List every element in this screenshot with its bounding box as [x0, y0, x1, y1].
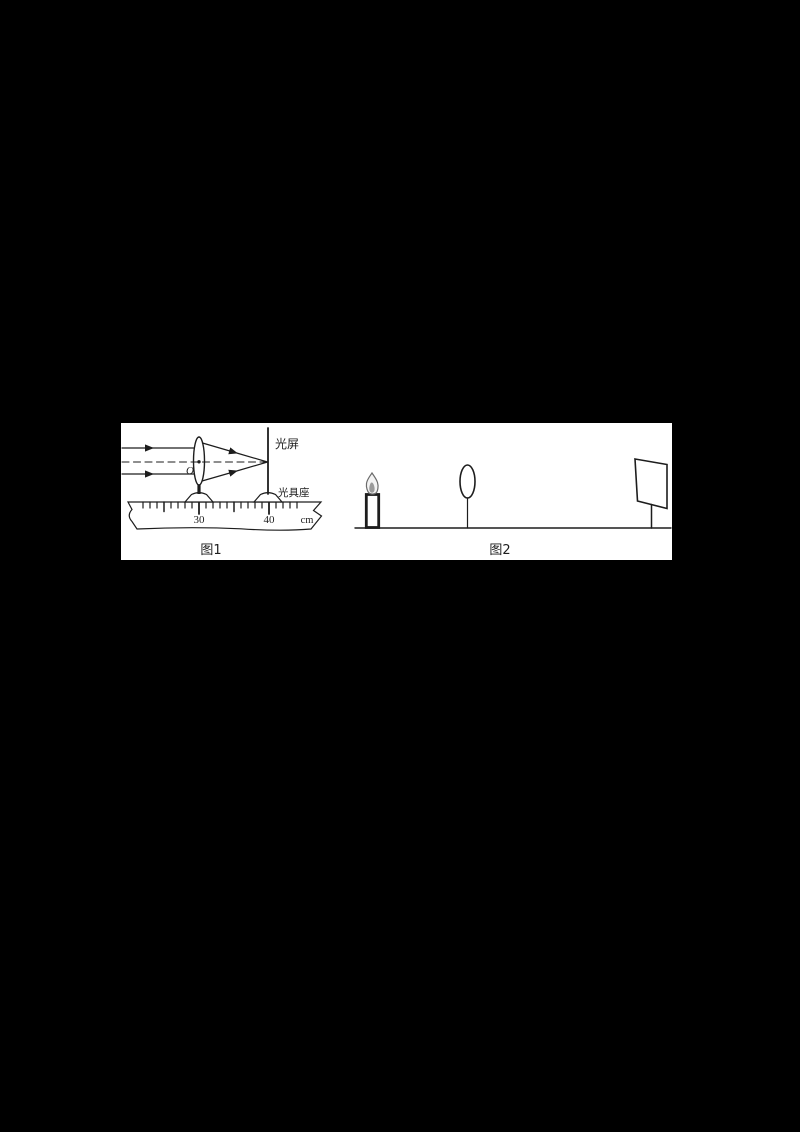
figure2-convex-lens	[460, 465, 475, 498]
candle-body	[366, 495, 378, 528]
ruler-unit-cm: cm	[301, 515, 314, 526]
figure2-screen	[635, 459, 667, 509]
figure1-caption: 图1	[200, 543, 221, 558]
physics-figure-panel: 光屏 光具座 O 30 40 cm 图1	[121, 423, 672, 560]
lens-stem	[197, 485, 200, 495]
ruler-number-40: 40	[264, 514, 276, 526]
refracted-ray-top	[203, 443, 268, 462]
screen-label: 光屏	[275, 437, 299, 451]
ruler-number-30: 30	[194, 514, 206, 526]
figure2-diagram	[355, 459, 671, 528]
refracted-ray-bottom	[202, 462, 268, 481]
bench-label: 光具座	[278, 486, 310, 499]
figure2-labels: 图2	[489, 543, 510, 558]
lens-center-dot	[197, 460, 200, 463]
lens-center-label: O	[186, 465, 194, 477]
figure2-caption: 图2	[489, 543, 510, 558]
optics-diagrams-svg: 光屏 光具座 O 30 40 cm 图1	[121, 423, 672, 560]
page-background: 光屏 光具座 O 30 40 cm 图1	[0, 0, 800, 1132]
lens-holder	[185, 493, 213, 502]
